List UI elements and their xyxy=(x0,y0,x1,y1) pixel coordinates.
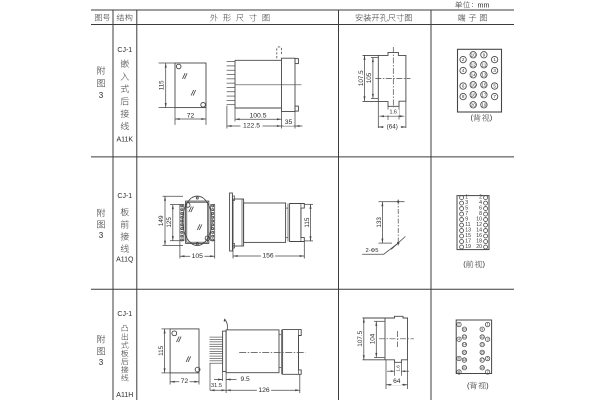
svg-text:1: 1 xyxy=(493,57,496,62)
svg-text:(64): (64) xyxy=(387,124,398,131)
svg-text:100.5: 100.5 xyxy=(249,113,266,120)
svg-text:4: 4 xyxy=(458,337,460,341)
svg-text:122.5: 122.5 xyxy=(243,123,260,130)
svg-text:1: 1 xyxy=(487,323,489,327)
svg-text:12: 12 xyxy=(462,335,466,339)
svg-text:64: 64 xyxy=(393,378,401,385)
svg-text:6: 6 xyxy=(462,84,465,89)
svg-text:6: 6 xyxy=(458,357,460,361)
svg-text:CJ-1: CJ-1 xyxy=(117,193,132,200)
svg-text:115: 115 xyxy=(158,345,165,356)
svg-text:3: 3 xyxy=(99,231,104,240)
svg-text:17: 17 xyxy=(481,92,487,97)
svg-text:9.5: 9.5 xyxy=(241,376,250,383)
svg-text:3: 3 xyxy=(487,337,489,341)
svg-text:19: 19 xyxy=(465,244,471,250)
svg-text:115: 115 xyxy=(159,80,166,90)
svg-text:11: 11 xyxy=(480,335,484,339)
svg-text:1.6: 1.6 xyxy=(389,109,397,115)
svg-text:19: 19 xyxy=(481,102,487,107)
svg-text:10: 10 xyxy=(471,52,477,57)
svg-text:17: 17 xyxy=(480,358,484,362)
svg-text:4: 4 xyxy=(462,68,465,73)
svg-text::: : xyxy=(471,2,473,9)
svg-text:2: 2 xyxy=(462,57,465,62)
svg-text:9: 9 xyxy=(481,327,483,331)
svg-text:20: 20 xyxy=(471,102,477,107)
svg-text:13: 13 xyxy=(481,72,487,77)
svg-text:2-Φ5: 2-Φ5 xyxy=(365,248,378,254)
svg-text:1.6: 1.6 xyxy=(396,365,401,372)
svg-text:107.5: 107.5 xyxy=(358,70,365,86)
svg-text:A11H: A11H xyxy=(116,392,133,399)
svg-text:107.5: 107.5 xyxy=(357,330,364,346)
svg-text:20: 20 xyxy=(476,244,482,250)
svg-text:72: 72 xyxy=(187,112,195,119)
svg-text:7: 7 xyxy=(487,370,489,374)
svg-text:16: 16 xyxy=(462,350,466,354)
svg-text:149: 149 xyxy=(158,215,165,226)
svg-text:16: 16 xyxy=(471,82,477,87)
svg-text:125: 125 xyxy=(166,217,173,228)
svg-text:11: 11 xyxy=(482,62,487,67)
svg-text:8: 8 xyxy=(462,94,465,99)
svg-text:12: 12 xyxy=(471,62,477,67)
svg-text:20: 20 xyxy=(462,366,466,370)
svg-text:3: 3 xyxy=(99,358,104,367)
svg-text:31.5: 31.5 xyxy=(211,383,222,389)
svg-text:8: 8 xyxy=(458,370,460,374)
svg-text:10: 10 xyxy=(462,327,466,331)
svg-text:156: 156 xyxy=(262,253,274,260)
svg-text:3: 3 xyxy=(99,91,104,100)
svg-text:35: 35 xyxy=(285,119,293,126)
svg-text:105: 105 xyxy=(366,72,373,83)
svg-text:mm: mm xyxy=(478,1,490,10)
svg-text:CJ-1: CJ-1 xyxy=(117,311,132,318)
svg-text:3: 3 xyxy=(493,68,496,73)
svg-text:A11K: A11K xyxy=(116,137,133,144)
svg-text:A11Q: A11Q xyxy=(116,257,134,264)
svg-text:115: 115 xyxy=(304,217,311,228)
svg-text:5: 5 xyxy=(487,357,489,361)
svg-text:2: 2 xyxy=(458,323,460,327)
svg-text:105: 105 xyxy=(192,253,204,260)
svg-text:104: 104 xyxy=(370,333,377,344)
svg-text:126: 126 xyxy=(258,387,270,394)
svg-text:CJ-1: CJ-1 xyxy=(117,47,132,54)
svg-text:7: 7 xyxy=(493,94,496,99)
svg-text:19: 19 xyxy=(480,366,484,370)
svg-text:9: 9 xyxy=(483,52,486,57)
svg-text:5: 5 xyxy=(493,84,496,89)
svg-text:15: 15 xyxy=(481,82,487,87)
svg-text:14: 14 xyxy=(462,343,466,347)
svg-text:18: 18 xyxy=(471,92,477,97)
svg-text:15: 15 xyxy=(480,350,484,354)
svg-text:72: 72 xyxy=(181,378,189,385)
svg-text:133: 133 xyxy=(376,217,383,228)
svg-text:13: 13 xyxy=(480,343,484,347)
svg-text:14: 14 xyxy=(471,72,477,77)
svg-text:18: 18 xyxy=(462,358,466,362)
